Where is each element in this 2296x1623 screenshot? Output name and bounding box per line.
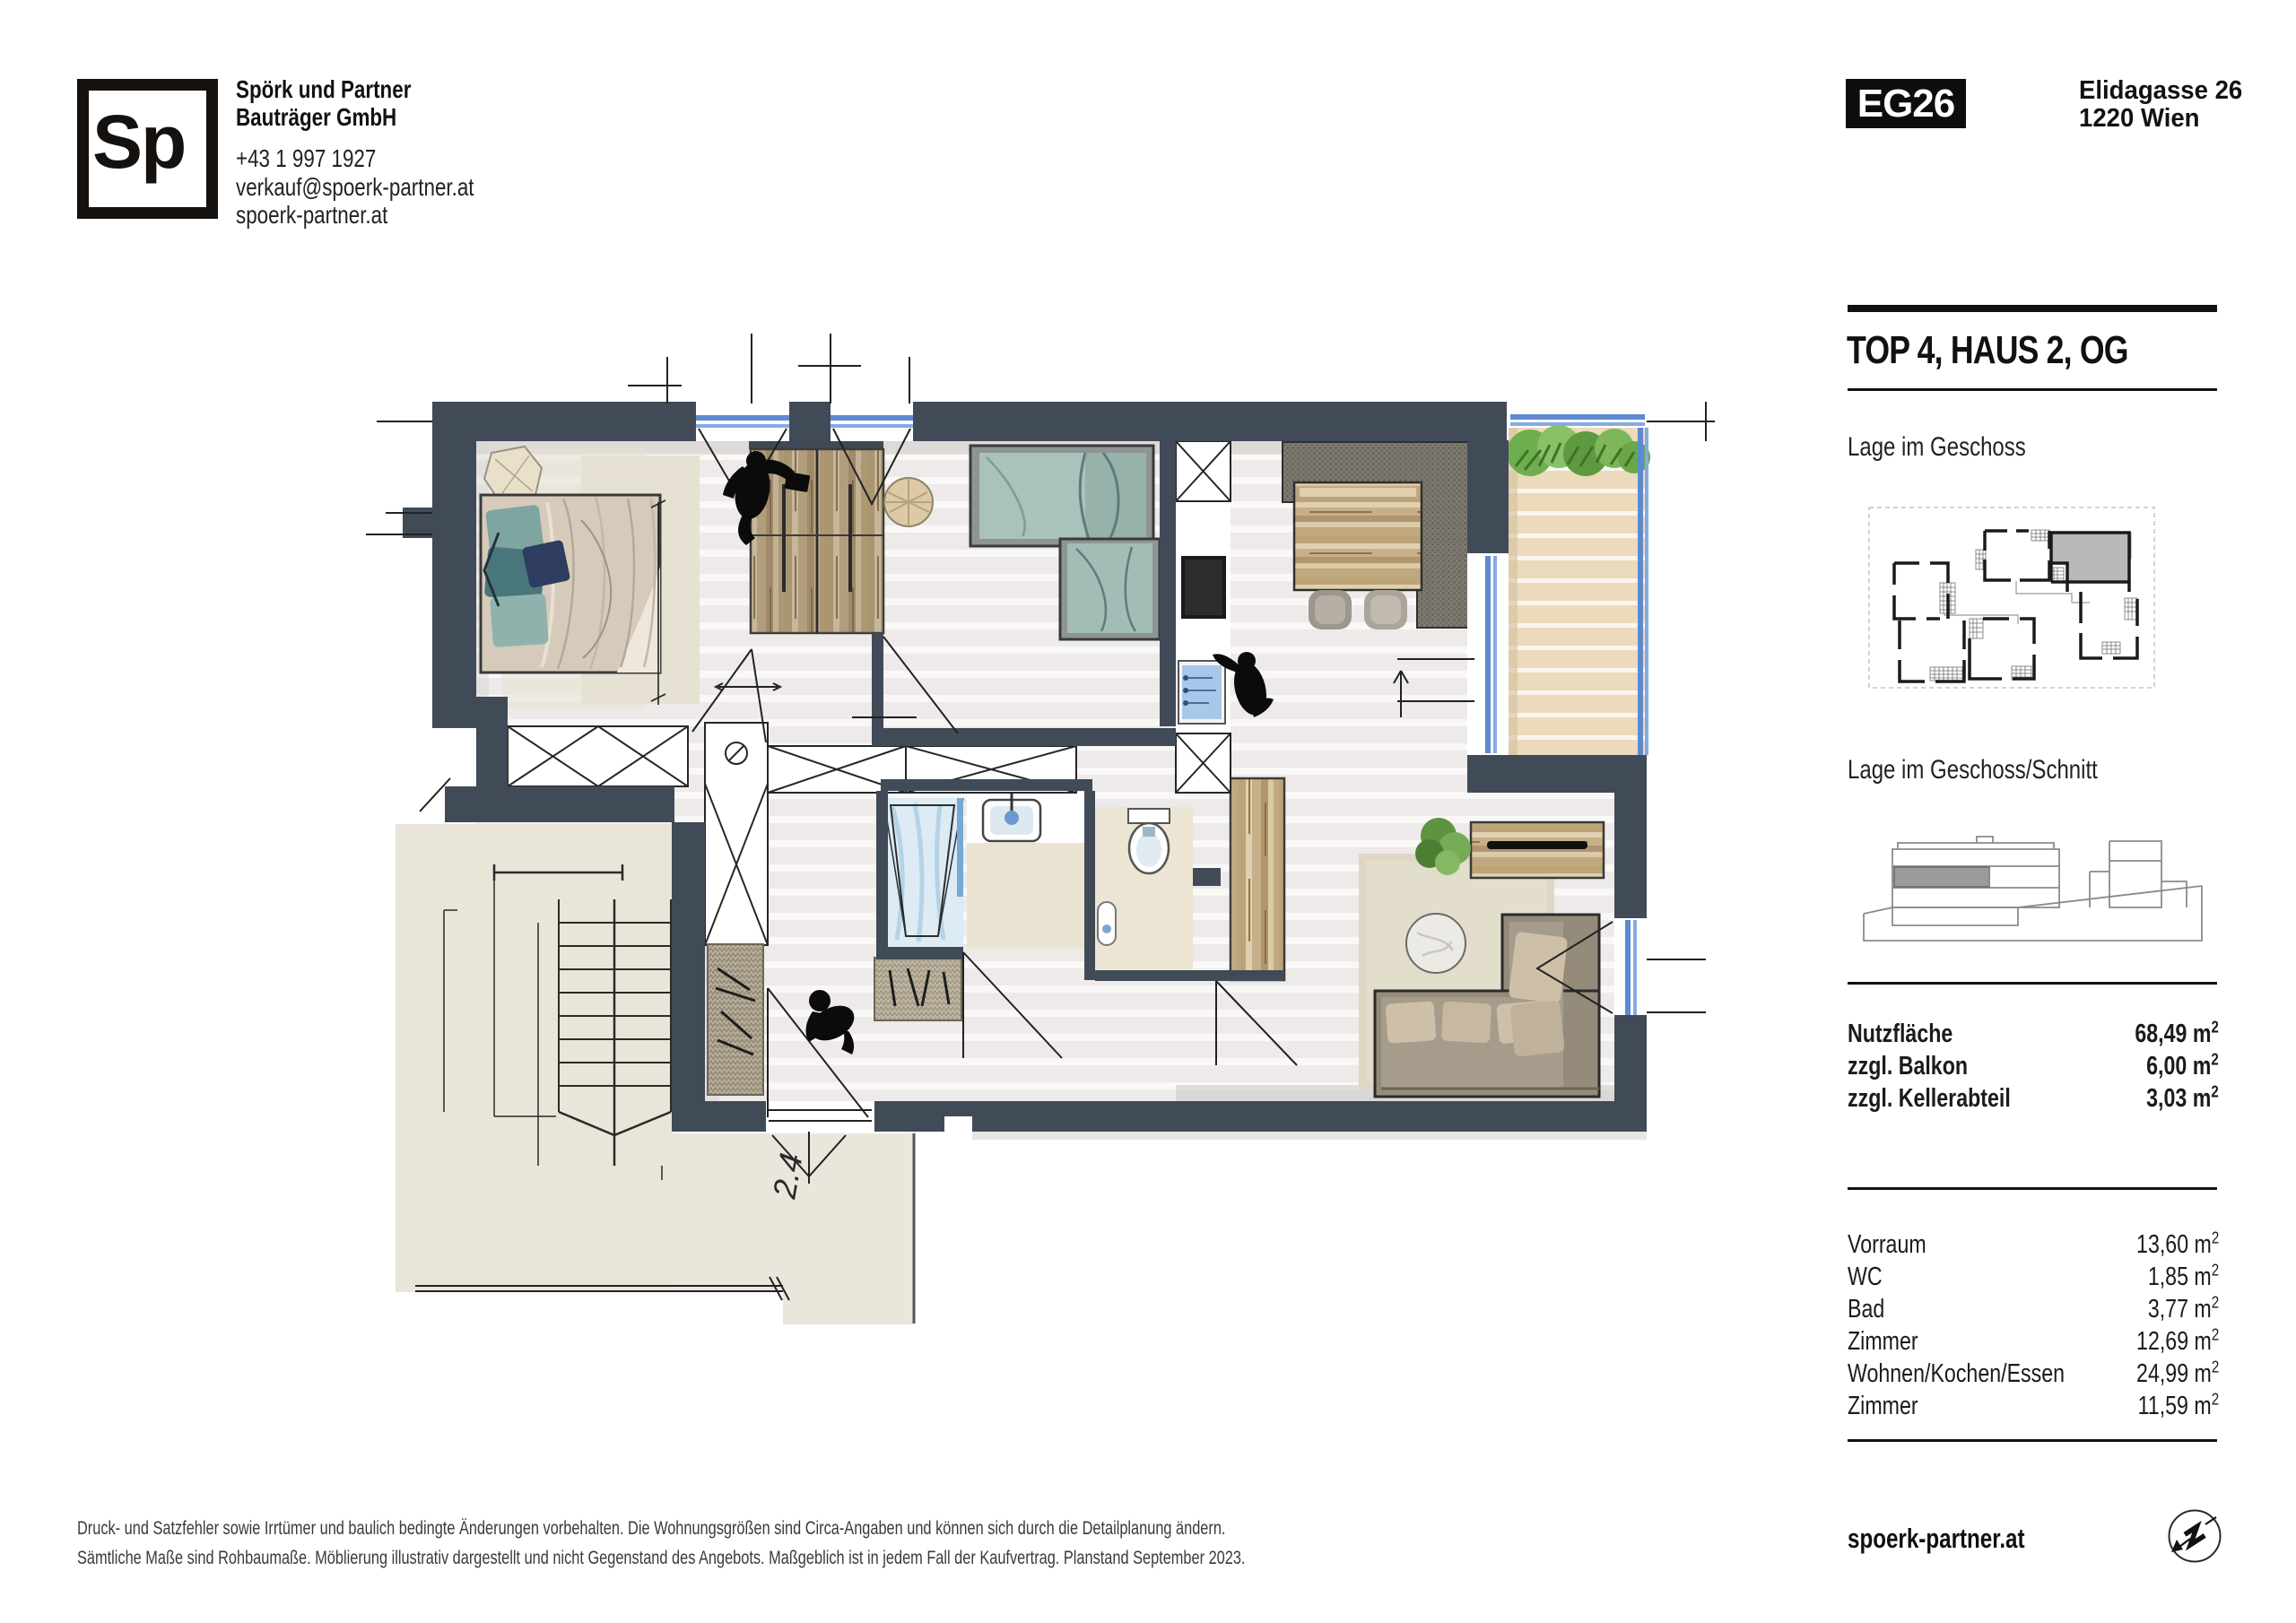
svg-text:2.4: 2.4 (765, 1150, 809, 1202)
